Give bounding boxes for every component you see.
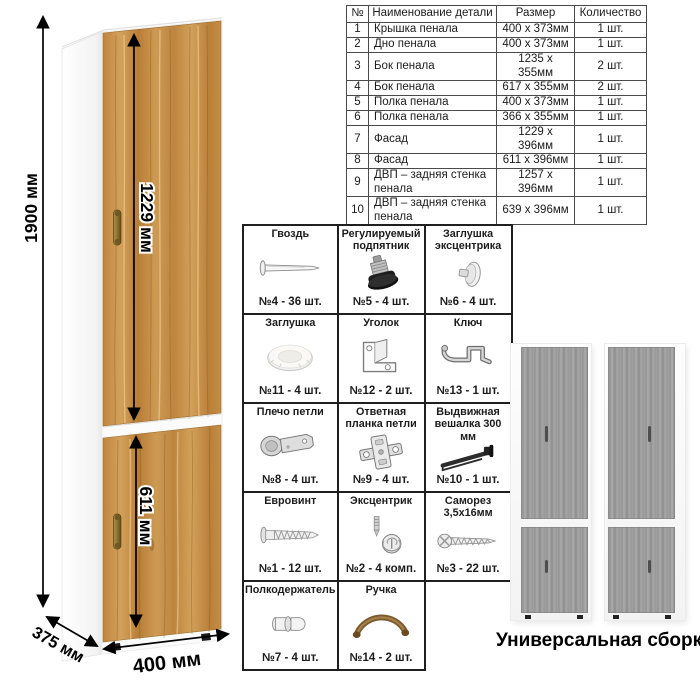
hardware-item-label: Евровинт bbox=[245, 495, 336, 507]
cabinet-foot bbox=[665, 615, 671, 619]
upper-door-dimension-label: 1229 мм bbox=[137, 183, 157, 253]
part-name: Полка пенала bbox=[369, 111, 497, 126]
parts-table-header-row: № Наименование детали Размер Количество bbox=[347, 6, 647, 23]
part-name: Крышка пенала bbox=[369, 23, 497, 38]
hardware-item-label: Эксцентрик bbox=[340, 495, 423, 507]
table-row: 3Бок пенала1235 x 355мм2 шт. bbox=[347, 53, 647, 81]
part-name: Бок пенала bbox=[369, 53, 497, 81]
height-dimension-label: 1900 мм bbox=[21, 173, 41, 243]
hinge-plate-icon bbox=[340, 431, 423, 474]
part-size: 400 x 373мм bbox=[497, 38, 575, 53]
cabinet-foot bbox=[525, 615, 531, 619]
hardware-item-count: №11 - 4 шт. bbox=[245, 385, 336, 398]
hardware-item-nail: Гвоздь №4 - 36 шт. bbox=[243, 225, 338, 314]
gray-lower-door bbox=[608, 527, 675, 613]
hardware-item-cap: Заглушка №11 - 4 шт. bbox=[243, 314, 338, 403]
table-row: 5Полка пенала400 x 373мм1 шт. bbox=[347, 96, 647, 111]
hardware-item-count: №1 - 12 шт. bbox=[245, 563, 336, 576]
col-header-name: Наименование детали bbox=[369, 6, 497, 23]
col-header-num: № bbox=[347, 6, 369, 23]
upper-door-handle bbox=[114, 210, 122, 245]
hardware-item-shelf-pin: Полкодержатель №7 - 4 шт. bbox=[243, 581, 338, 670]
part-num: 1 bbox=[347, 23, 369, 38]
part-num: 7 bbox=[347, 126, 369, 154]
part-qty: 1 шт. bbox=[575, 169, 647, 197]
hardware-item-label: Ответная планка петли bbox=[340, 406, 423, 431]
table-row: 10ДВП – задняя стенка пенала639 x 396мм1… bbox=[347, 197, 647, 225]
part-size: 611 x 396мм bbox=[497, 154, 575, 169]
cabinet-foot bbox=[577, 615, 583, 619]
part-size: 400 x 373мм bbox=[497, 23, 575, 38]
table-row: 4Бок пенала617 x 355мм2 шт. bbox=[347, 81, 647, 96]
hardware-item-label: Плечо петли bbox=[245, 406, 336, 418]
col-header-size: Размер bbox=[497, 6, 575, 23]
cam-lock-icon bbox=[340, 507, 423, 563]
hardware-item-count: №4 - 36 шт. bbox=[245, 296, 336, 309]
part-qty: 1 шт. bbox=[575, 197, 647, 225]
hardware-item-count: №9 - 4 шт. bbox=[340, 474, 423, 487]
assembly-caption: Универсальная сборка. bbox=[496, 630, 700, 652]
handle-icon bbox=[340, 596, 423, 652]
adjustable-foot-icon bbox=[340, 253, 423, 296]
table-row: 1Крышка пенала400 x 373мм1 шт. bbox=[347, 23, 647, 38]
cabinet-side-panel bbox=[62, 32, 102, 661]
part-qty: 1 шт. bbox=[575, 96, 647, 111]
hardware-item-count: №14 - 2 шт. bbox=[340, 652, 423, 665]
cabinet-diagram: 1900 мм 1229 мм 611 мм 375 мм 400 мм bbox=[0, 0, 240, 683]
part-size: 366 x 355мм bbox=[497, 111, 575, 126]
part-size: 400 x 373мм bbox=[497, 96, 575, 111]
part-num: 8 bbox=[347, 154, 369, 169]
table-row: 2Дно пенала400 x 373мм1 шт. bbox=[347, 38, 647, 53]
door-knot-mark bbox=[648, 560, 651, 573]
hardware-item-count: №5 - 4 шт. bbox=[340, 296, 423, 309]
part-num: 6 bbox=[347, 111, 369, 126]
hardware-item-cam-cover: Заглушка эксцентрика №6 - 4 шт. bbox=[425, 225, 512, 314]
part-qty: 1 шт. bbox=[575, 111, 647, 126]
gray-lower-door bbox=[521, 527, 588, 613]
hardware-item-label: Полкодержатель bbox=[245, 584, 336, 596]
part-size: 617 x 355мм bbox=[497, 81, 575, 96]
hardware-item-count: №2 - 4 комп. bbox=[340, 563, 423, 576]
part-size: 639 x 396мм bbox=[497, 197, 575, 225]
hardware-item-corner-bracket: Уголок №12 - 2 шт. bbox=[338, 314, 425, 403]
hardware-item-label: Гвоздь bbox=[245, 228, 336, 240]
part-size: 1229 x 396мм bbox=[497, 126, 575, 154]
part-num: 9 bbox=[347, 169, 369, 197]
part-qty: 1 шт. bbox=[575, 154, 647, 169]
part-name: Полка пенала bbox=[369, 96, 497, 111]
lower-door-dimension-label: 611 мм bbox=[136, 487, 156, 546]
cam-cover-icon bbox=[427, 253, 510, 296]
part-qty: 2 шт. bbox=[575, 53, 647, 81]
gray-upper-door bbox=[608, 347, 675, 519]
corner-bracket-icon bbox=[340, 329, 423, 385]
hardware-item-label: Ключ bbox=[427, 317, 510, 329]
part-name: Фасад bbox=[369, 154, 497, 169]
hardware-item-label: Ручка bbox=[340, 584, 423, 596]
part-size: 1235 x 355мм bbox=[497, 53, 575, 81]
hardware-item-count: №8 - 4 шт. bbox=[245, 474, 336, 487]
hardware-item-label: Заглушка эксцентрика bbox=[427, 228, 510, 253]
hardware-item-count: №6 - 4 шт. bbox=[427, 296, 510, 309]
part-name: Фасад bbox=[369, 126, 497, 154]
hardware-item-hinge-plate: Ответная планка петли bbox=[338, 403, 425, 492]
assembly-cabinet-left bbox=[511, 344, 591, 620]
part-name: ДВП – задняя стенка пенала bbox=[369, 197, 497, 225]
hardware-item-count: №7 - 4 шт. bbox=[245, 652, 336, 665]
part-num: 3 bbox=[347, 53, 369, 81]
hardware-item-hinge-arm: Плечо петли №8 - 4 шт. bbox=[243, 403, 338, 492]
part-num: 5 bbox=[347, 96, 369, 111]
part-num: 10 bbox=[347, 197, 369, 225]
part-size: 1257 x 396мм bbox=[497, 169, 575, 197]
hardware-item-count: №12 - 2 шт. bbox=[340, 385, 423, 398]
part-name: ДВП – задняя стенка пенала bbox=[369, 169, 497, 197]
shelf-pin-icon bbox=[245, 596, 336, 652]
gray-upper-door bbox=[521, 347, 588, 519]
hardware-item-label: Регулируемый подпятник bbox=[340, 228, 423, 253]
door-knot-mark bbox=[545, 426, 548, 442]
hinge-arm-icon bbox=[245, 418, 336, 474]
part-qty: 1 шт. bbox=[575, 38, 647, 53]
hardware-item-label: Заглушка bbox=[245, 317, 336, 329]
hardware-item-cam-lock: Эксцентрик №2 - 4 комп. bbox=[338, 492, 425, 581]
hardware-grid: Гвоздь №4 - 36 шт. Регулируемый подпятни… bbox=[242, 224, 513, 671]
door-knot-mark bbox=[648, 426, 651, 442]
part-name: Дно пенала bbox=[369, 38, 497, 53]
cabinet-foot bbox=[613, 615, 619, 619]
part-name: Бок пенала bbox=[369, 81, 497, 96]
table-row: 6Полка пенала366 x 355мм1 шт. bbox=[347, 111, 647, 126]
hardware-item-handle: Ручка №14 - 2 шт. bbox=[338, 581, 425, 670]
parts-table: № Наименование детали Размер Количество … bbox=[346, 5, 647, 225]
col-header-qty: Количество bbox=[575, 6, 647, 23]
part-qty: 1 шт. bbox=[575, 23, 647, 38]
nail-icon bbox=[245, 240, 336, 296]
door-knot-mark bbox=[545, 560, 548, 573]
part-qty: 1 шт. bbox=[575, 126, 647, 154]
cap-icon bbox=[245, 329, 336, 385]
table-row: 7Фасад1229 x 396мм1 шт. bbox=[347, 126, 647, 154]
hardware-item-label: Уголок bbox=[340, 317, 423, 329]
part-num: 4 bbox=[347, 81, 369, 96]
assembly-preview: Универсальная сборка. bbox=[496, 344, 700, 652]
lower-door-handle bbox=[114, 514, 122, 549]
part-qty: 2 шт. bbox=[575, 81, 647, 96]
hardware-item-euro-screw: Евровинт №1 - 12 шт. bbox=[243, 492, 338, 581]
width-dimension-label: 400 мм bbox=[132, 648, 203, 678]
part-num: 2 bbox=[347, 38, 369, 53]
euro-screw-icon bbox=[245, 507, 336, 563]
assembly-cabinet-right bbox=[605, 344, 685, 620]
table-row: 9ДВП – задняя стенка пенала1257 x 396мм1… bbox=[347, 169, 647, 197]
hardware-item-adjustable-foot: Регулируемый подпятник bbox=[338, 225, 425, 314]
table-row: 8Фасад611 x 396мм1 шт. bbox=[347, 154, 647, 169]
